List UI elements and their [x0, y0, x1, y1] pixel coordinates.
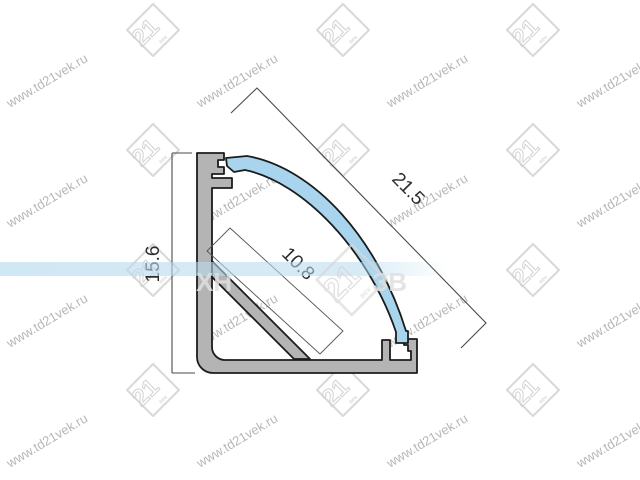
- watermark-site-text: www.td21vek.ru: [3, 50, 90, 111]
- dimension-layer: 15.6 21.5 10.8: [143, 88, 486, 373]
- watermark-site-text: www.td21vek.ru: [193, 410, 280, 471]
- td21vek-logo-icon: [507, 4, 559, 56]
- led-profile-cross-section-drawing: 21 век www.td21vek.ruwww.td21vek.ruwww.t…: [0, 0, 640, 480]
- td21vek-logo-icon: [507, 244, 559, 296]
- watermark-site-text: www.td21vek.ru: [383, 410, 470, 471]
- td21vek-logo-icon: [127, 364, 179, 416]
- watermark-site-text: www.td21vek.ru: [3, 410, 90, 471]
- profile-drawing-page: 21 век www.td21vek.ruwww.td21vek.ruwww.t…: [0, 0, 640, 480]
- watermark-site-text: www.td21vek.ru: [193, 50, 280, 111]
- watermark-site-text: www.td21vek.ru: [383, 50, 470, 111]
- td21vek-logo-icon: [127, 4, 179, 56]
- watermark-tile-layer: www.td21vek.ruwww.td21vek.ruwww.td21vek.…: [3, 4, 640, 471]
- td21vek-logo-icon: [317, 124, 369, 176]
- watermark-site-text: www.td21vek.ru: [3, 290, 90, 351]
- watermark-site-text: www.td21vek.ru: [573, 410, 640, 471]
- watermark-site-text: www.td21vek.ru: [573, 50, 640, 111]
- td21vek-logo-icon: [507, 364, 559, 416]
- watermark-site-text: www.td21vek.ru: [3, 170, 90, 231]
- td21vek-logo-icon: [127, 124, 179, 176]
- watermark-site-text: www.td21vek.ru: [573, 170, 640, 231]
- td21vek-logo-icon: [507, 124, 559, 176]
- center-watermark-left-text: ХН: [196, 267, 232, 297]
- watermark-site-text: www.td21vek.ru: [573, 290, 640, 351]
- td21vek-logo-icon: [317, 4, 369, 56]
